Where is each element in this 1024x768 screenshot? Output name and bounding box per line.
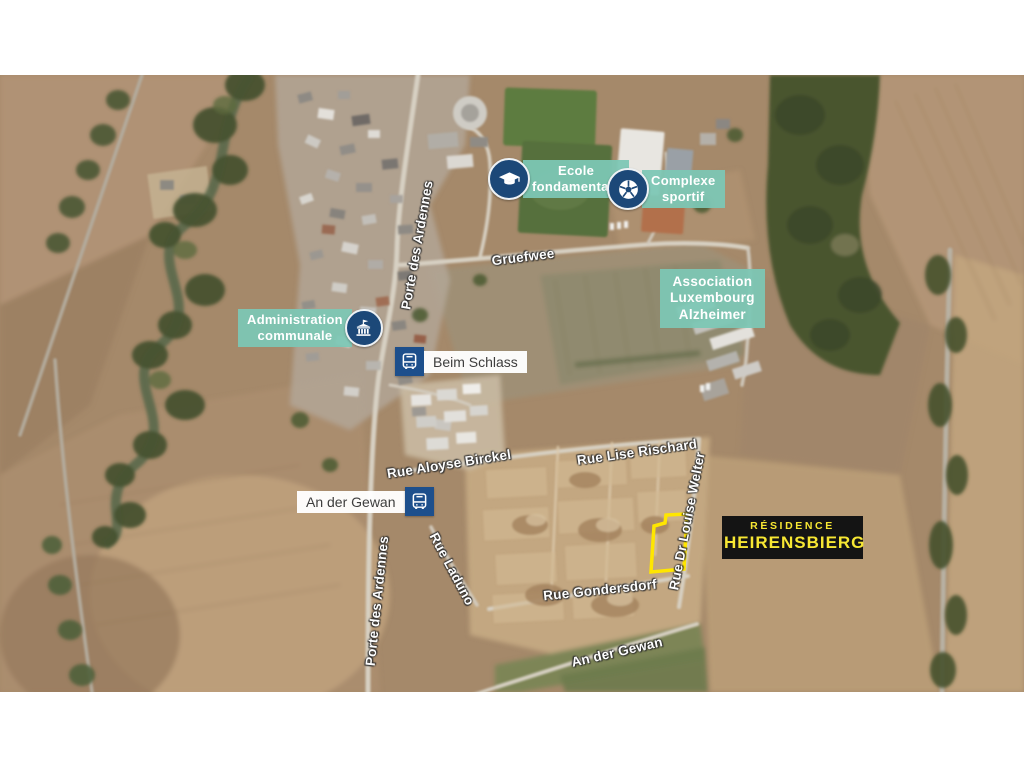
- poi-association-alzheimer: Association Luxembourg Alzheimer: [660, 269, 765, 328]
- town-hall-icon: [345, 309, 383, 347]
- bus-icon: [405, 487, 434, 516]
- bus-stop-name: An der Gewan: [297, 491, 405, 513]
- bus-stop-beim-schlass: Beim Schlass: [395, 347, 527, 376]
- poi-complexe-line2: sportif: [651, 189, 716, 205]
- poi-badge-administration: Administration communale: [238, 309, 352, 347]
- graduation-cap-icon: [488, 158, 530, 200]
- poi-association-line2: Luxembourg: [670, 290, 755, 306]
- residence-location-page: Porte des Ardennes Gruefwee Rue Aloyse B…: [0, 0, 1024, 768]
- bus-stop-name: Beim Schlass: [424, 351, 527, 373]
- poi-association-line3: Alzheimer: [670, 307, 755, 323]
- residence-badge: RÉSIDENCE HEIRENSBIERG: [722, 516, 863, 559]
- bus-icon: [395, 347, 424, 376]
- poi-administration-line1: Administration: [247, 312, 343, 328]
- poi-administration-communale: Administration communale: [238, 309, 383, 347]
- poi-administration-line2: communale: [247, 328, 343, 344]
- soccer-ball-icon: [607, 168, 649, 210]
- bus-stop-an-der-gewan: An der Gewan: [297, 487, 434, 516]
- poi-complexe-line1: Complexe: [651, 173, 716, 189]
- poi-badge-complexe: Complexe sportif: [642, 170, 725, 208]
- residence-badge-line1: RÉSIDENCE: [724, 520, 861, 532]
- poi-badge-association: Association Luxembourg Alzheimer: [660, 269, 765, 328]
- poi-complexe-sportif: Complexe sportif: [607, 168, 725, 210]
- poi-association-line1: Association: [670, 274, 755, 290]
- residence-badge-line2: HEIRENSBIERG: [724, 533, 861, 553]
- satellite-map: Porte des Ardennes Gruefwee Rue Aloyse B…: [0, 75, 1024, 692]
